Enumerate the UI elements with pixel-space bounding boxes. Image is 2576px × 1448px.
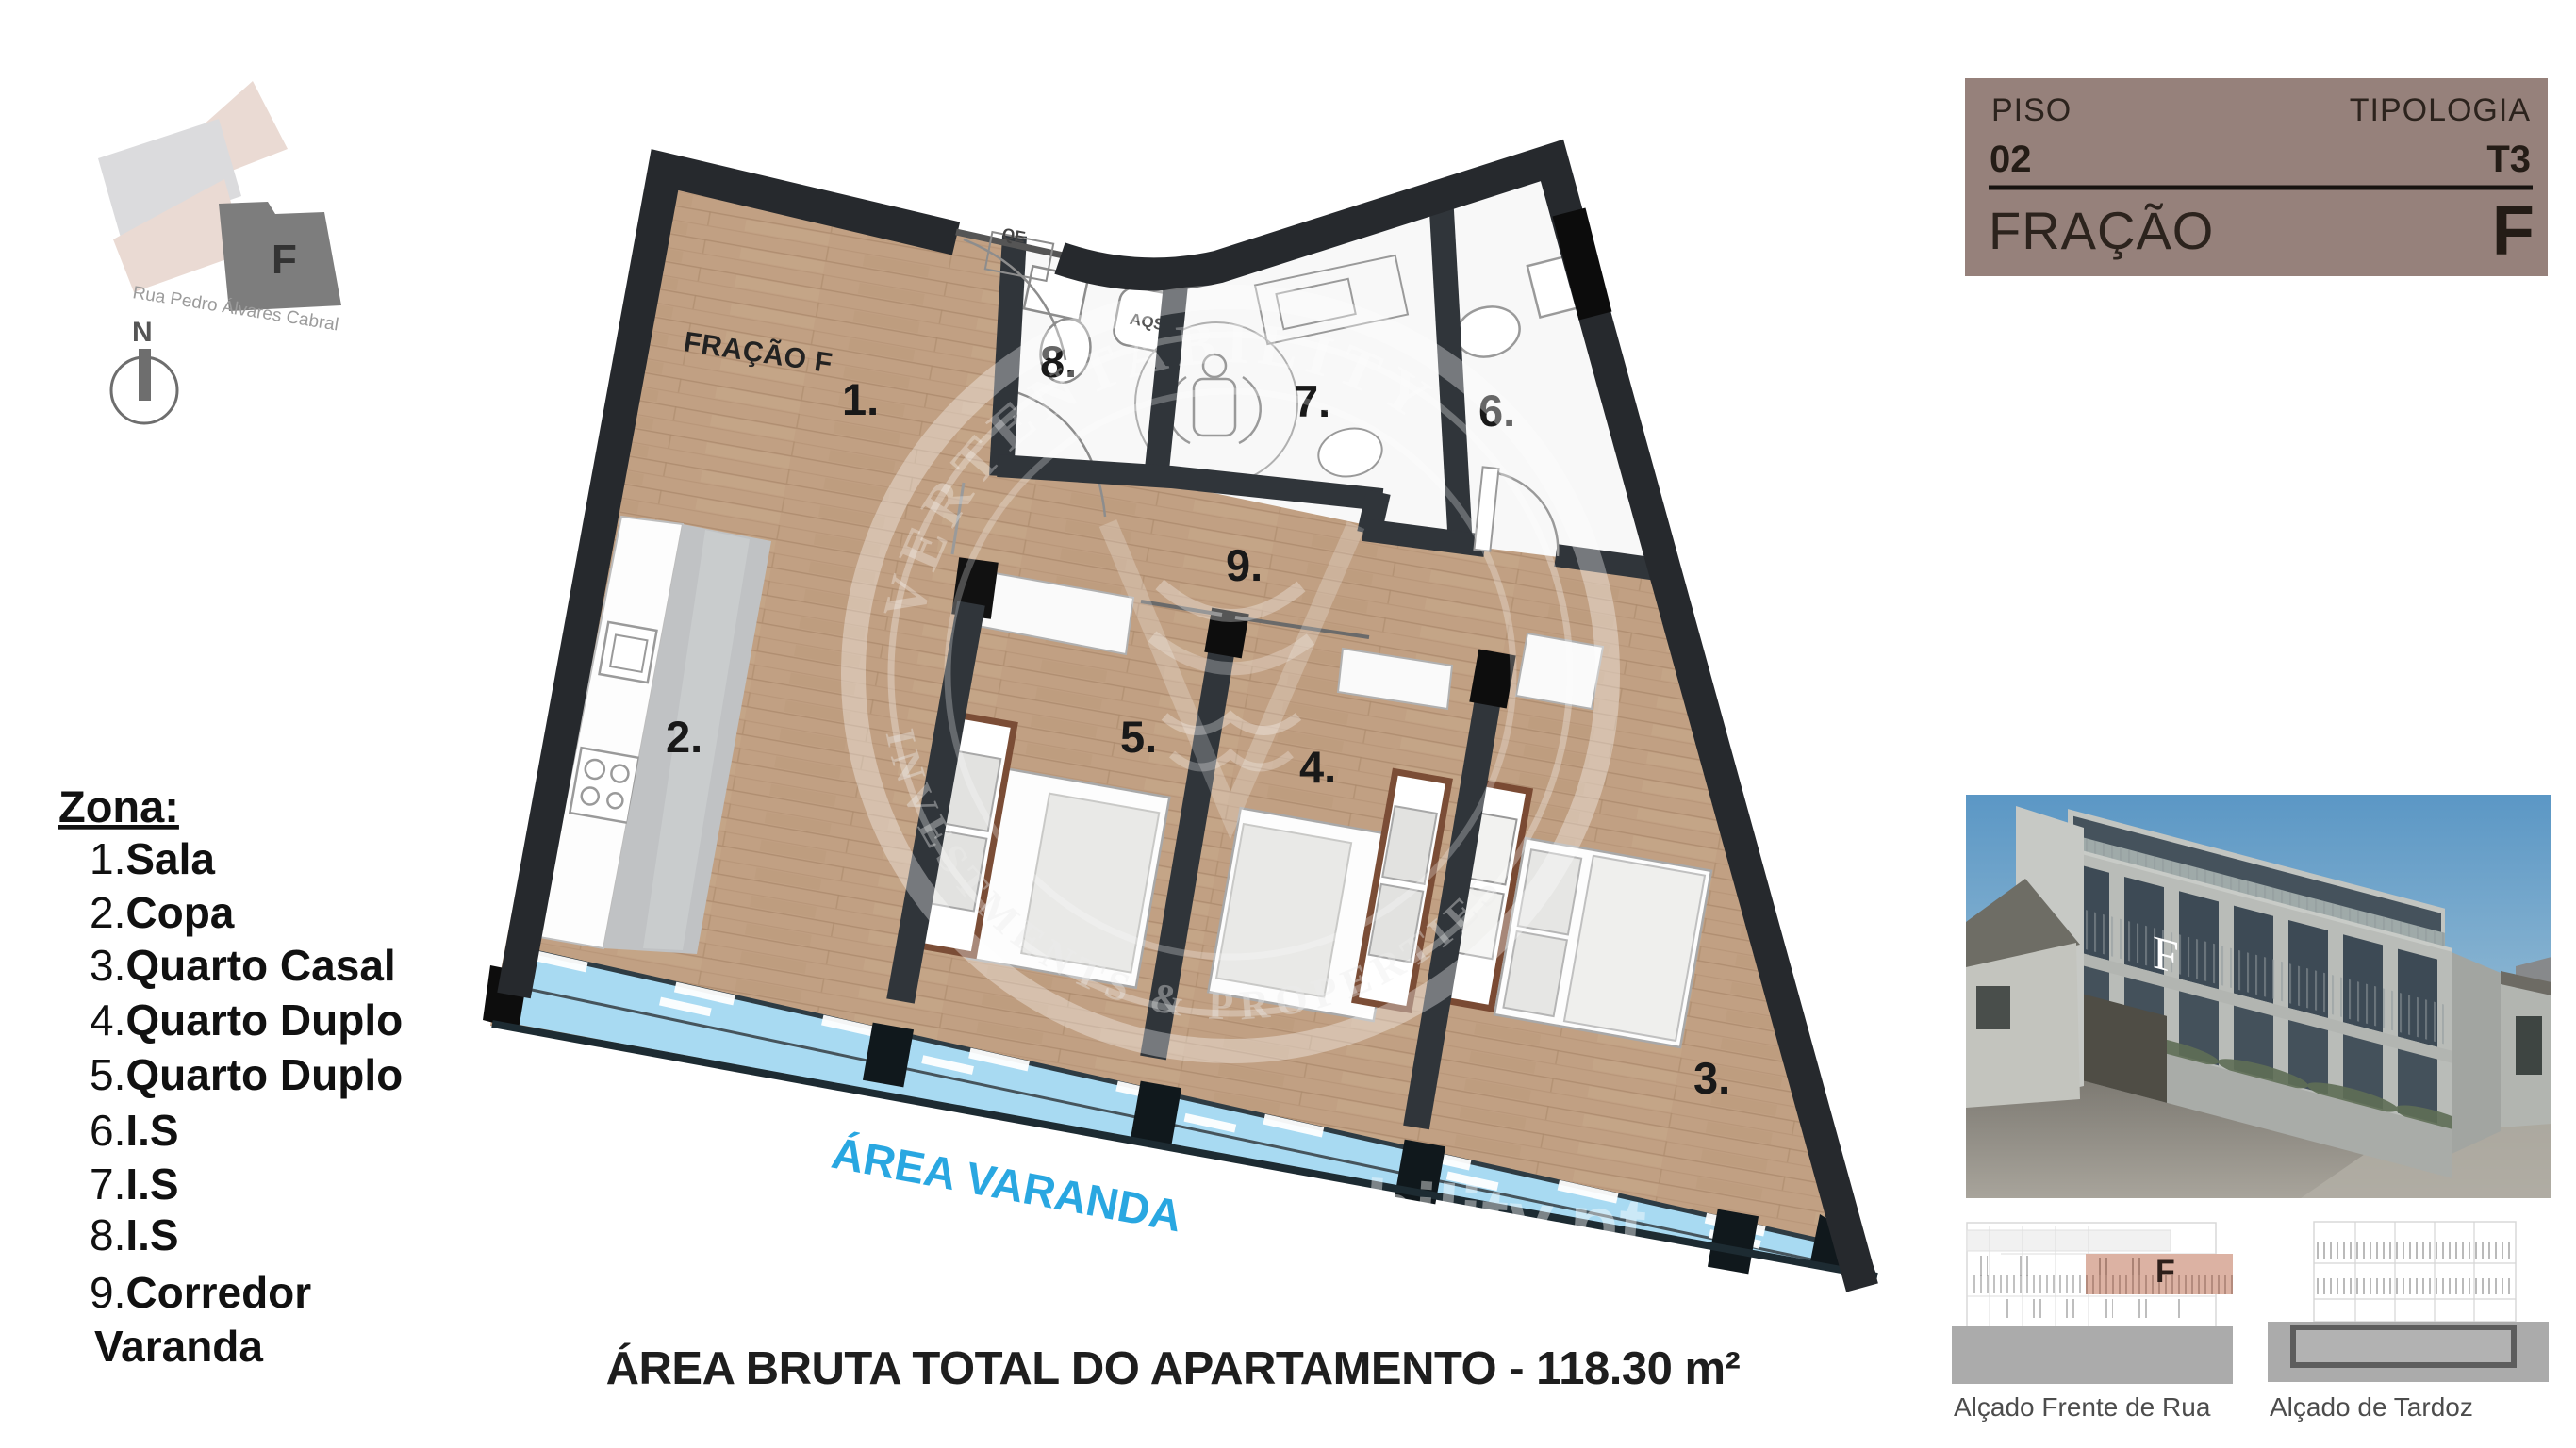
svg-text:F: F [272, 237, 297, 283]
svg-text:Alçado de Tardoz: Alçado de Tardoz [2270, 1392, 2473, 1422]
svg-text:6.I.S: 6.I.S [90, 1106, 179, 1155]
svg-text:7.I.S: 7.I.S [90, 1160, 179, 1209]
svg-text:ÁREA BRUTA TOTAL DO APARTAMENT: ÁREA BRUTA TOTAL DO APARTAMENTO - 118.30… [606, 1343, 1741, 1394]
svg-text:Zona:: Zona: [58, 782, 179, 831]
svg-text:1.Sala: 1.Sala [90, 834, 215, 883]
svg-text:FRAÇÃO: FRAÇÃO [1989, 201, 2214, 260]
svg-text:5.: 5. [1120, 712, 1157, 762]
svg-text:F: F [2153, 927, 2179, 985]
svg-text:9.: 9. [1226, 540, 1263, 590]
svg-text:F: F [2492, 191, 2535, 270]
svg-text:Alçado Frente de Rua: Alçado Frente de Rua [1954, 1392, 2211, 1422]
svg-text:2.: 2. [666, 712, 702, 762]
svg-text:PISO: PISO [1991, 92, 2072, 128]
svg-text:8.I.S: 8.I.S [90, 1210, 179, 1259]
svg-text:02: 02 [1990, 139, 2032, 180]
svg-text:3.: 3. [1693, 1053, 1730, 1103]
svg-text:9.Corredor: 9.Corredor [90, 1268, 311, 1317]
svg-text:3.Quarto Casal: 3.Quarto Casal [90, 941, 396, 990]
svg-text:N: N [132, 317, 153, 348]
svg-text:T3: T3 [2486, 139, 2531, 180]
svg-text:TIPOLOGIA: TIPOLOGIA [2350, 92, 2531, 128]
svg-text:Varanda: Varanda [94, 1322, 263, 1371]
svg-text:4.Quarto Duplo: 4.Quarto Duplo [90, 995, 403, 1045]
svg-text:5.Quarto Duplo: 5.Quarto Duplo [90, 1050, 403, 1099]
svg-text:F: F [2155, 1254, 2175, 1290]
svg-text:4.: 4. [1299, 742, 1336, 792]
svg-text:1.: 1. [842, 374, 879, 424]
svg-text:2.Copa: 2.Copa [90, 888, 235, 937]
